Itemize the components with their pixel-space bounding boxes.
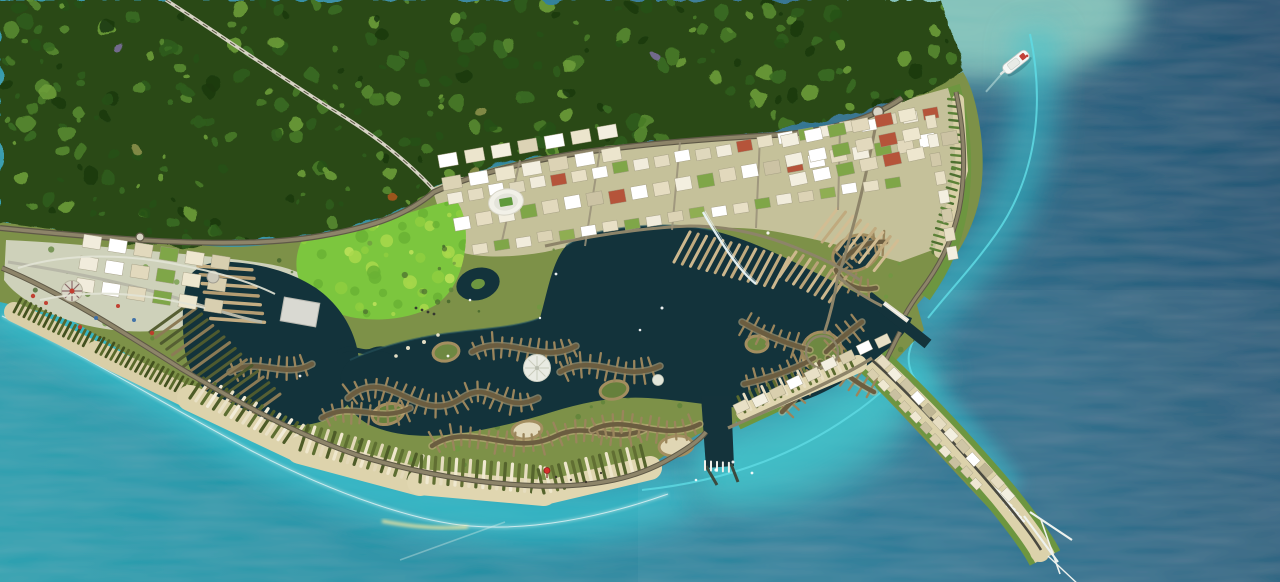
masterplan-canvas [0,0,1280,582]
masterplan-aerial-view [0,0,1280,582]
lagoon-white-disc [524,355,551,382]
lagoon-small-disc [653,375,664,386]
roundabout-west [136,233,144,241]
spit-tip [1030,542,1050,562]
